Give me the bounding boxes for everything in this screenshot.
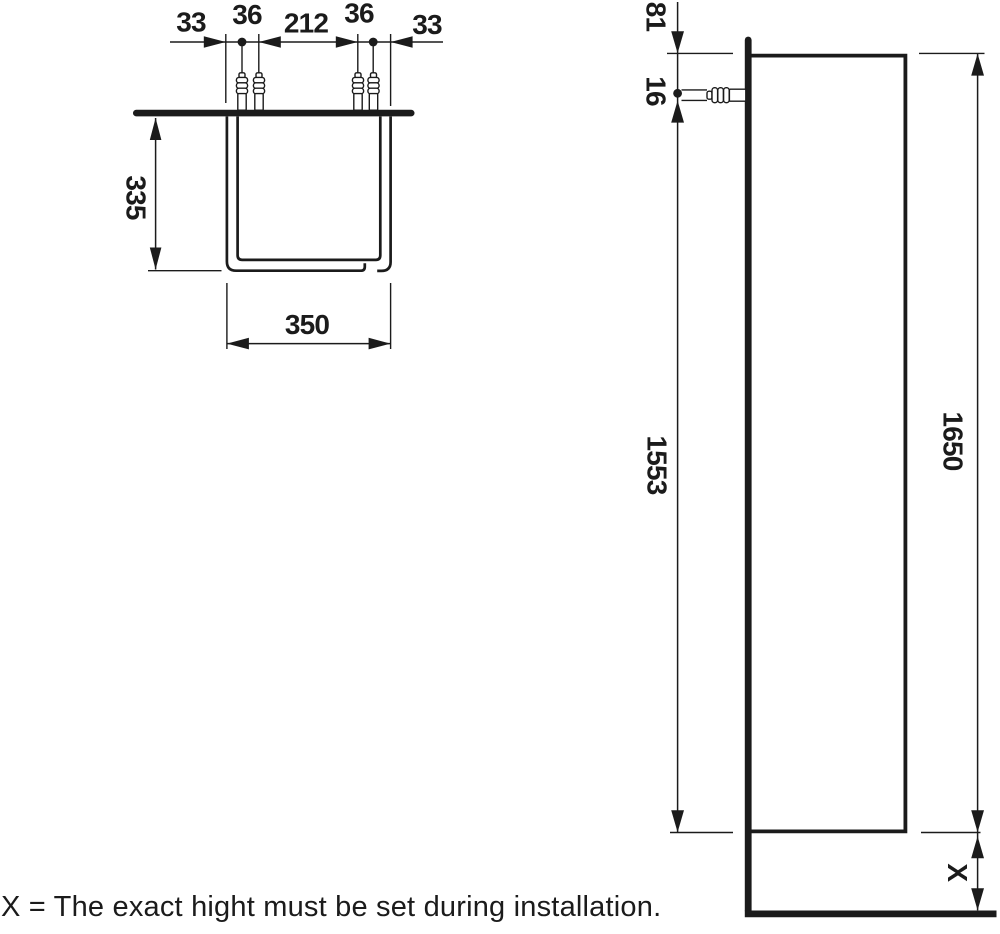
cabinet-outer-edge xyxy=(227,117,365,271)
cabinet-plan-outline xyxy=(227,117,391,271)
arrowhead xyxy=(204,36,226,48)
chain-dot xyxy=(369,38,378,47)
dim-label-1553: 1553 xyxy=(642,435,673,494)
dim-label-36-right: 36 xyxy=(344,0,374,29)
drawing-canvas: 33 36 212 36 33 335 xyxy=(0,0,1000,934)
technical-drawing: 33 36 212 36 33 335 xyxy=(0,0,1000,934)
arrowhead xyxy=(259,36,281,48)
footnote: X = The exact hight must be set during i… xyxy=(1,891,661,923)
arrowhead xyxy=(391,36,413,48)
arrowhead xyxy=(227,338,249,350)
dim-label-335: 335 xyxy=(121,175,152,220)
side-view: 81 16 1553 1650 X xyxy=(641,2,997,914)
arrowhead xyxy=(971,810,984,832)
cabinet-inner-edge xyxy=(238,117,381,260)
arrowhead xyxy=(369,338,391,350)
wall-plug-icon xyxy=(253,73,264,110)
dim-label-1650: 1650 xyxy=(938,411,969,470)
dim-label-33-left: 33 xyxy=(176,7,206,38)
chain-dimension: 33 36 212 36 33 xyxy=(170,0,443,106)
wall-plug-icon xyxy=(352,73,363,110)
dim-label-33-right: 33 xyxy=(412,9,442,40)
arrowhead xyxy=(971,888,984,910)
dim-label-36-left: 36 xyxy=(232,0,262,30)
wall-plug-icon xyxy=(368,73,379,110)
dim-label-x: X xyxy=(942,863,973,882)
dim-label-212: 212 xyxy=(284,8,329,39)
right-dimension-column: 1650 X xyxy=(919,53,985,910)
mounting-plate xyxy=(133,110,415,117)
arrowhead xyxy=(971,836,984,858)
chain-dot xyxy=(238,38,247,47)
wall-plug-icon xyxy=(707,88,746,103)
arrowhead xyxy=(671,101,684,123)
arrowhead xyxy=(150,118,162,140)
arrowhead xyxy=(150,248,162,270)
dim-label-16: 16 xyxy=(641,76,672,106)
arrowhead xyxy=(671,810,684,832)
left-dimension-column: 81 16 1553 xyxy=(641,2,733,833)
chain-dot xyxy=(673,89,682,98)
plan-view: 33 36 212 36 33 335 xyxy=(121,0,443,349)
width-dimension: 350 xyxy=(227,283,391,349)
depth-dimension: 335 xyxy=(121,118,222,271)
dim-label-81: 81 xyxy=(641,2,672,32)
arrowhead xyxy=(971,54,984,76)
arrowhead xyxy=(336,36,358,48)
dim-label-350: 350 xyxy=(285,309,330,340)
wall-plug-icon xyxy=(236,73,247,110)
cabinet-side-outline xyxy=(752,56,906,832)
arrowhead xyxy=(671,31,684,53)
